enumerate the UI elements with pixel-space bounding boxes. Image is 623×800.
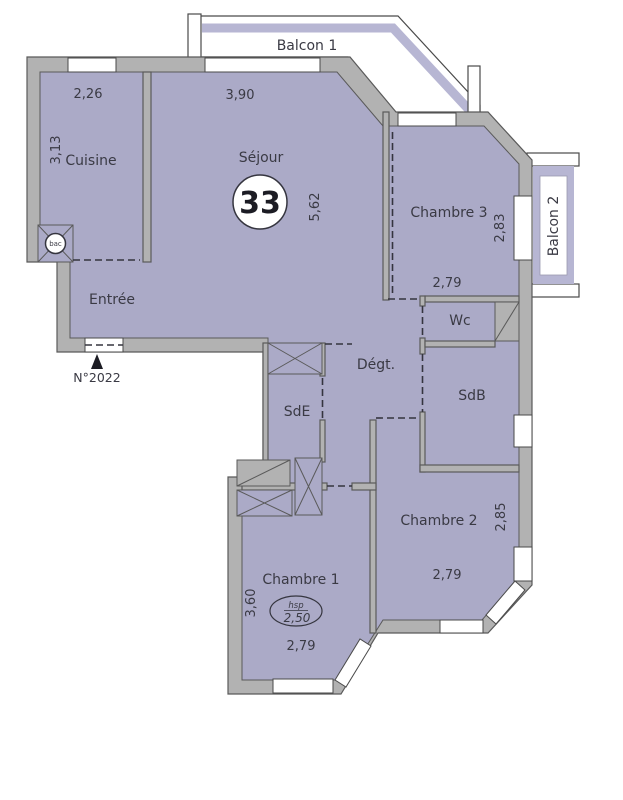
chambre2-dim-depth: 2,85 xyxy=(494,503,509,532)
window-sejour xyxy=(205,58,320,72)
sejour-label: Séjour xyxy=(239,150,284,166)
entrance-marker: N°2022 xyxy=(73,354,120,385)
closet-chambre1 xyxy=(237,490,292,516)
wall-chambre1-top-b xyxy=(352,483,376,490)
wall-wc-left-a xyxy=(420,296,425,306)
wc-label: Wc xyxy=(449,313,471,329)
wall-wc-sdb xyxy=(425,341,495,347)
wall-wc-top xyxy=(425,296,519,302)
balcony-2-bottom-cap xyxy=(527,284,579,297)
balcony-2-label: Balcon 2 xyxy=(546,196,562,257)
window-chambre2-right xyxy=(514,547,532,581)
window-sdb-right xyxy=(514,415,532,447)
chambre3-dim-depth: 2,83 xyxy=(493,214,508,243)
entrance-door-label: N°2022 xyxy=(73,370,120,385)
wall-wc-left-b xyxy=(420,338,425,354)
balcony-1-label: Balcon 1 xyxy=(277,38,338,54)
wall-sejour-chambre3 xyxy=(383,112,389,300)
chambre1-dim-width: 2,79 xyxy=(287,639,316,654)
entrance-arrow xyxy=(91,354,103,369)
balcony-1-left-post xyxy=(188,14,201,58)
window-chambre3-right xyxy=(514,196,532,260)
duct-sde-bottom xyxy=(237,460,290,486)
chambre3-label: Chambre 3 xyxy=(410,205,487,221)
balcony-1-right-post xyxy=(468,66,480,114)
balcony-2-top-cap xyxy=(527,153,579,166)
chambre1-dim-depth: 3,60 xyxy=(244,589,259,618)
unit-number: 33 xyxy=(239,186,281,221)
kitchen-sink-label: bac xyxy=(49,240,62,248)
window-chambre2-bottom xyxy=(440,620,483,633)
window-cuisine xyxy=(68,58,116,72)
chambre1-label: Chambre 1 xyxy=(262,572,339,588)
wall-sde-right-b xyxy=(320,420,325,462)
chambre2-label: Chambre 2 xyxy=(400,513,477,529)
sejour-dim-width: 3,90 xyxy=(226,88,255,103)
closet-tall xyxy=(295,458,322,515)
wall-sdb-bottom xyxy=(420,465,519,472)
wall-cuisine-sejour xyxy=(143,72,151,262)
duct-wc xyxy=(495,302,519,341)
sejour-dim-depth: 5,62 xyxy=(308,193,323,222)
unit-number-badge: 33 xyxy=(233,175,287,229)
entree-label: Entrée xyxy=(89,292,135,308)
window-chambre1-bottom xyxy=(273,679,333,693)
floor-plan-page: Balcon 1 Balcon 2 xyxy=(0,0,623,800)
sdb-label: SdB xyxy=(458,388,485,404)
sde-label: SdE xyxy=(284,404,311,420)
cuisine-dim-width: 2,26 xyxy=(74,87,103,102)
closet-sde-top xyxy=(268,343,322,374)
balcony-2: Balcon 2 xyxy=(527,153,579,297)
chambre2-dim-width: 2,79 xyxy=(433,568,462,583)
kitchen-sink-unit: bac xyxy=(38,225,73,262)
window-chambre3-top xyxy=(398,113,456,126)
chambre3-dim-width: 2,79 xyxy=(433,276,462,291)
wall-sdb-left xyxy=(420,412,425,472)
cuisine-label: Cuisine xyxy=(65,153,116,169)
hsp-value: 2,50 xyxy=(284,611,311,625)
wall-chambre2-left xyxy=(370,420,376,633)
floor-plan: Balcon 1 Balcon 2 xyxy=(0,0,623,800)
hsp-label: hsp xyxy=(288,601,303,611)
cuisine-dim-depth: 3,13 xyxy=(49,136,64,165)
degt-label: Dégt. xyxy=(357,357,395,373)
